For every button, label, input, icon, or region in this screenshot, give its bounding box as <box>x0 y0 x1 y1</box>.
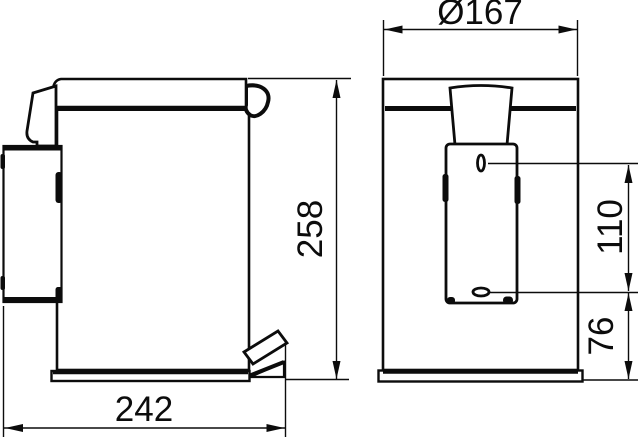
arrow-down-icon <box>625 273 633 291</box>
arrow-left-icon <box>385 26 403 34</box>
arrow-right-icon <box>559 26 577 34</box>
dim-label-lower-hole-height: 76 <box>582 317 621 356</box>
arrow-up-icon <box>625 293 633 311</box>
dim-label-hole-spacing: 110 <box>591 199 630 255</box>
rear-screw-hole-upper <box>478 155 485 171</box>
side-bracket-wall-tab-upper <box>1 154 6 169</box>
side-lid-hook <box>246 85 269 116</box>
side-bracket-clip-lower <box>56 287 63 302</box>
dim-label-diameter: Ø167 <box>437 0 523 32</box>
arrow-down-icon <box>625 361 633 379</box>
technical-drawing-canvas: 242 258 Ø167 110 <box>0 0 640 441</box>
arrow-up-icon <box>625 165 633 183</box>
dim-label-depth: 242 <box>115 390 173 429</box>
arrow-up-icon <box>333 80 341 98</box>
rear-plate-clip-left <box>443 174 449 202</box>
rear-plate-foot-left <box>447 297 455 304</box>
side-bin-body <box>57 108 249 370</box>
side-lid <box>53 79 246 107</box>
arrow-down-icon <box>333 361 341 379</box>
side-bracket-wall-tab-lower <box>1 276 6 290</box>
rear-view <box>379 79 583 382</box>
side-foot-pedal <box>244 331 287 364</box>
rear-plate-foot-right <box>503 297 513 305</box>
rear-plate-clip-right <box>515 176 521 204</box>
pedal-bin-dimension-drawing: 242 258 Ø167 110 <box>0 0 640 441</box>
side-hinge-lever <box>27 86 56 146</box>
side-view <box>1 79 288 381</box>
dimension-height: 258 <box>248 79 351 380</box>
arrow-right-icon <box>267 424 285 432</box>
dimension-lower-hole-height: 76 <box>582 293 638 380</box>
side-bracket-clip-upper <box>56 172 63 203</box>
dimension-diameter: Ø167 <box>384 0 578 76</box>
arrow-left-icon <box>5 424 23 432</box>
dim-label-height: 258 <box>291 200 330 258</box>
rear-hinge-cover <box>450 86 512 146</box>
rear-screw-hole-lower <box>473 288 489 296</box>
side-wall-bracket <box>4 146 62 302</box>
